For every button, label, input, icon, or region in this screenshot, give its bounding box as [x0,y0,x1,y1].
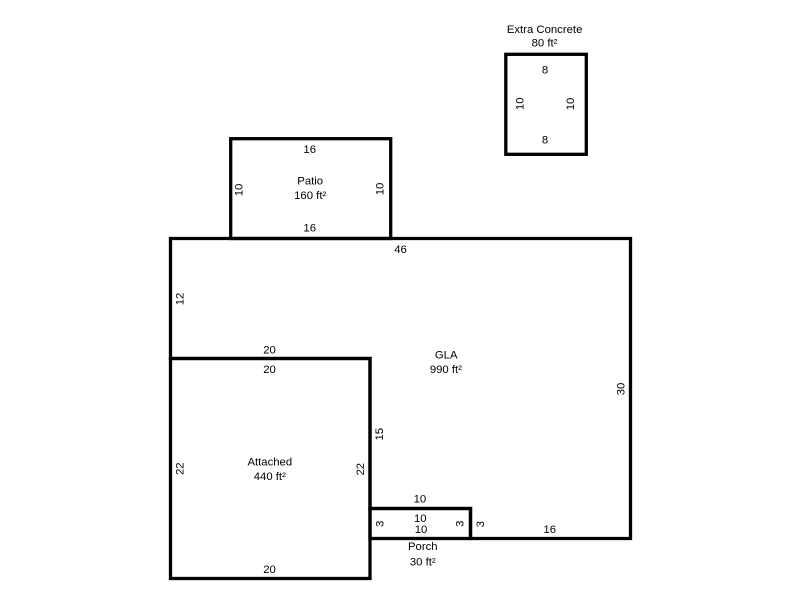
svg-text:16: 16 [303,223,316,235]
svg-text:3: 3 [475,521,487,527]
svg-text:3: 3 [374,521,386,527]
svg-text:990 ft²: 990 ft² [430,364,462,376]
svg-text:440 ft²: 440 ft² [254,471,286,483]
svg-text:22: 22 [355,463,367,476]
svg-text:20: 20 [263,344,276,356]
svg-text:Porch: Porch [408,541,438,553]
svg-text:10: 10 [515,97,527,110]
svg-text:GLA: GLA [435,350,458,362]
svg-text:16: 16 [543,524,556,536]
svg-text:Extra Concrete: Extra Concrete [507,24,583,36]
svg-text:12: 12 [174,293,186,306]
svg-text:15: 15 [374,428,386,441]
svg-text:10: 10 [414,494,427,506]
svg-text:10: 10 [415,524,428,536]
svg-text:20: 20 [263,564,276,576]
svg-text:Attached: Attached [247,457,292,469]
svg-text:80 ft²: 80 ft² [532,37,558,49]
svg-text:16: 16 [303,144,316,156]
svg-text:30 ft²: 30 ft² [410,556,436,568]
svg-text:Patio: Patio [297,176,323,188]
svg-text:30: 30 [615,383,627,396]
svg-text:20: 20 [263,364,276,376]
svg-text:10: 10 [565,98,577,111]
svg-text:46: 46 [394,244,407,256]
svg-text:10: 10 [375,183,387,196]
svg-text:8: 8 [542,64,548,76]
svg-text:8: 8 [542,134,548,146]
svg-text:10: 10 [234,184,246,197]
svg-text:160 ft²: 160 ft² [294,190,326,202]
svg-text:3: 3 [455,521,467,527]
svg-text:22: 22 [175,462,187,475]
